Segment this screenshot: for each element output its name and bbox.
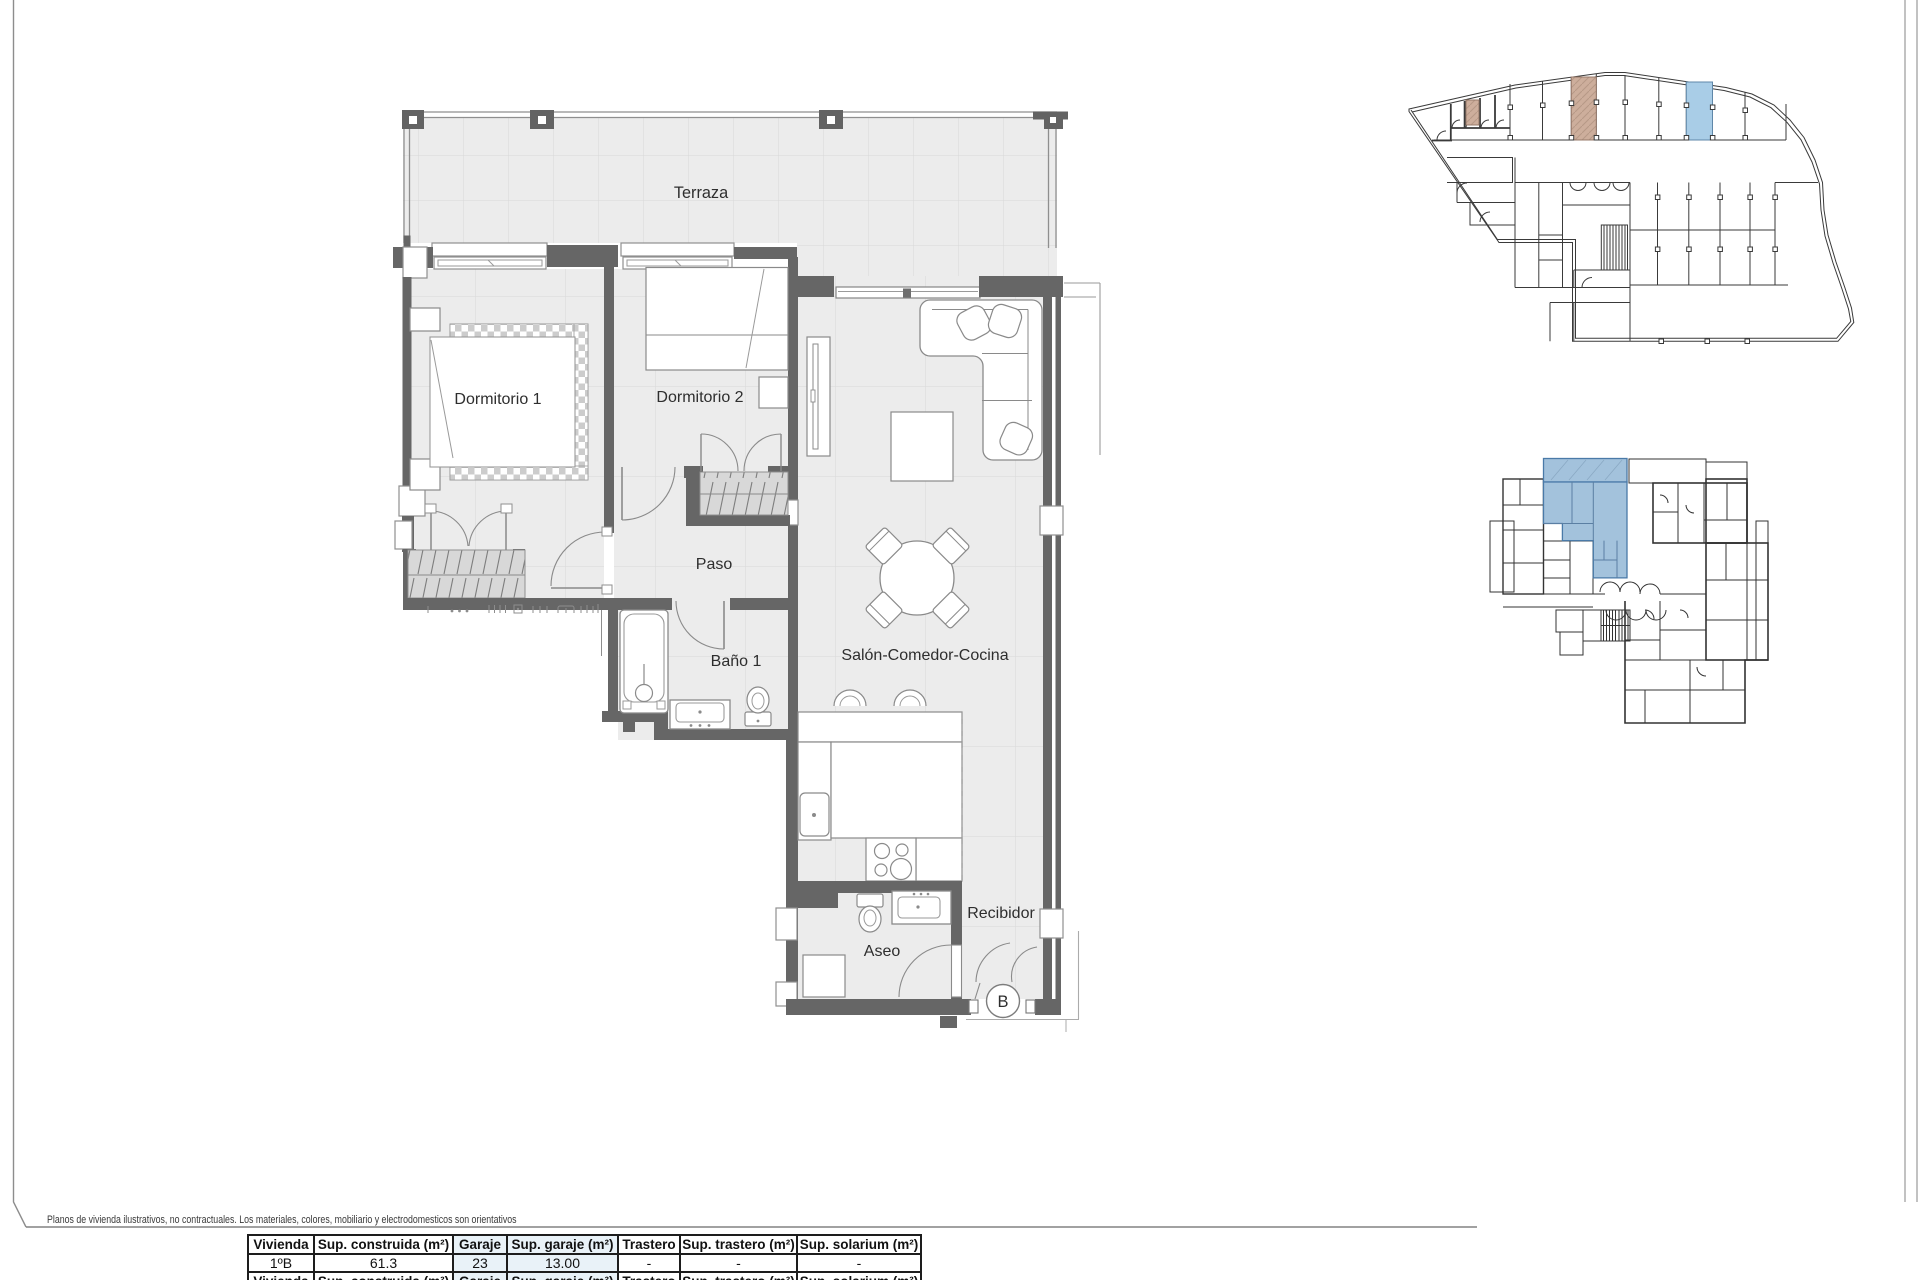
- svg-text:Dormitorio 1: Dormitorio 1: [454, 391, 541, 408]
- svg-text:B: B: [997, 993, 1008, 1011]
- svg-text:Paso: Paso: [696, 556, 733, 573]
- svg-text:Aseo: Aseo: [864, 943, 901, 960]
- svg-text:Recibidor: Recibidor: [967, 905, 1035, 922]
- svg-text:Dormitorio 2: Dormitorio 2: [656, 389, 743, 406]
- svg-text:Baño 1: Baño 1: [711, 653, 762, 670]
- svg-text:Terraza: Terraza: [674, 184, 729, 202]
- svg-text:Salón-Comedor-Cocina: Salón-Comedor-Cocina: [841, 647, 1008, 664]
